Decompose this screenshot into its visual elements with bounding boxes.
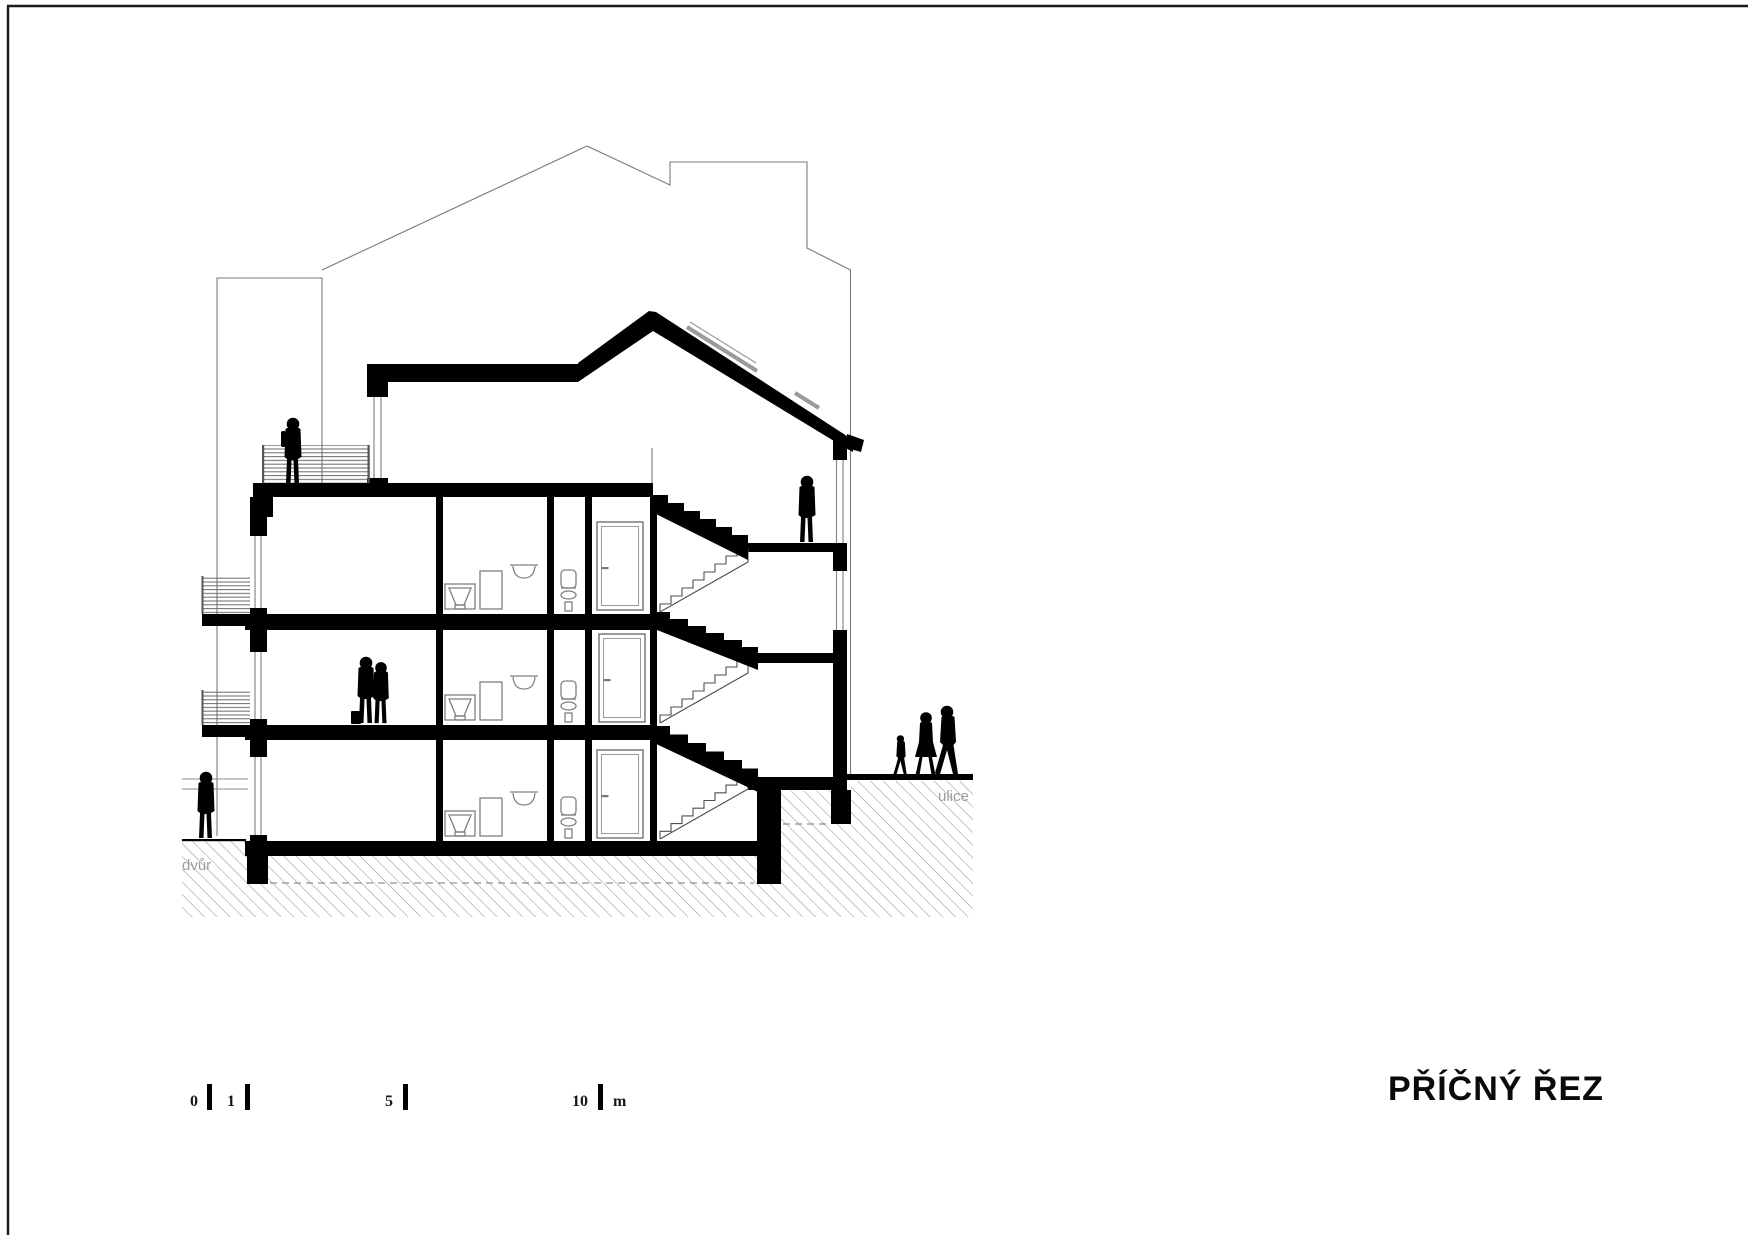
woman-figure [915,712,937,775]
scale-label-0: 0 [190,1093,198,1110]
stair-landing-mid [758,653,833,663]
couple-first-floor [351,657,389,724]
scale-tick [207,1084,212,1110]
staircase [652,495,758,839]
cut-stair-flight-upper [652,495,748,560]
cut-stair-flight-lower [652,726,758,792]
foundation-pier-left [247,856,268,884]
terrace-railing [262,445,370,483]
balcony-door-window [250,757,267,835]
terrace-floor-slab [253,483,653,497]
penthouse-window-sill [367,478,388,484]
stair-landing-top [748,543,833,552]
apartment-door-second-floor [597,522,643,610]
first-floor-slab [245,725,657,740]
left-neighbour-building-outline [217,278,322,836]
sloped-roof [578,311,853,452]
flat-roof-and-parapet [367,364,578,397]
courtyard-ground-line [182,839,246,841]
apartment-door-ground-floor [597,750,643,838]
interior-doors [597,522,645,838]
man-figure [935,706,958,776]
scale-tick [245,1084,250,1110]
cut-stair-flight-middle [652,612,758,670]
balcony-railing-upper [202,576,251,614]
apartment-door-first-floor [599,634,645,722]
scale-unit-label: m [613,1093,627,1110]
child-figure [893,735,906,776]
street-ground-line [847,774,973,780]
stairwell-window-upper [833,460,847,543]
bathroom-ground-floor [445,792,576,838]
cross-section-drawing: dvůr ulice 0 1 5 10 m PŘÍČNÝ ŘEZ [0,0,1754,1240]
drawing-sheet: dvůr ulice 0 1 5 10 m PŘÍČNÝ ŘEZ [0,0,1754,1240]
stairwell-window-lower [833,571,847,630]
scale-tick [598,1084,603,1110]
balcony-door-window [250,652,267,719]
balcony-railing-lower [202,690,251,725]
scale-tick [403,1084,408,1110]
scale-label-5: 5 [385,1093,393,1110]
bathroom-first-floor [445,676,576,722]
foundation-pier-stair [757,777,781,884]
balcony-slab-upper [202,614,247,626]
bathroom-second-floor [445,565,576,611]
penthouse-window [370,397,386,478]
roof-skylight [687,322,819,408]
far-stair-flight-upper [660,548,748,612]
person-in-courtyard [198,772,215,838]
family-on-street [893,706,958,776]
scale-bar: 0 1 5 10 m [190,1084,627,1110]
balcony-slab-lower [202,725,247,737]
drawing-title: PŘÍČNÝ ŘEZ [1388,1069,1604,1108]
ground-floor-slab [245,841,760,856]
second-floor-slab [245,614,657,630]
entrance-floor-slab [748,777,833,790]
bathroom-fixtures [445,565,576,838]
courtyard-label: dvůr [182,857,211,874]
person-on-stair-landing [799,476,816,542]
scale-label-10: 10 [572,1093,588,1110]
building-section-structure [202,311,864,884]
balcony-door-window [250,536,267,608]
far-stair-flight-middle [660,659,748,723]
far-stair-flight-lower [660,777,748,839]
street-label: ulice [938,788,969,805]
scale-label-1: 1 [227,1093,235,1110]
briefcase [351,711,361,724]
